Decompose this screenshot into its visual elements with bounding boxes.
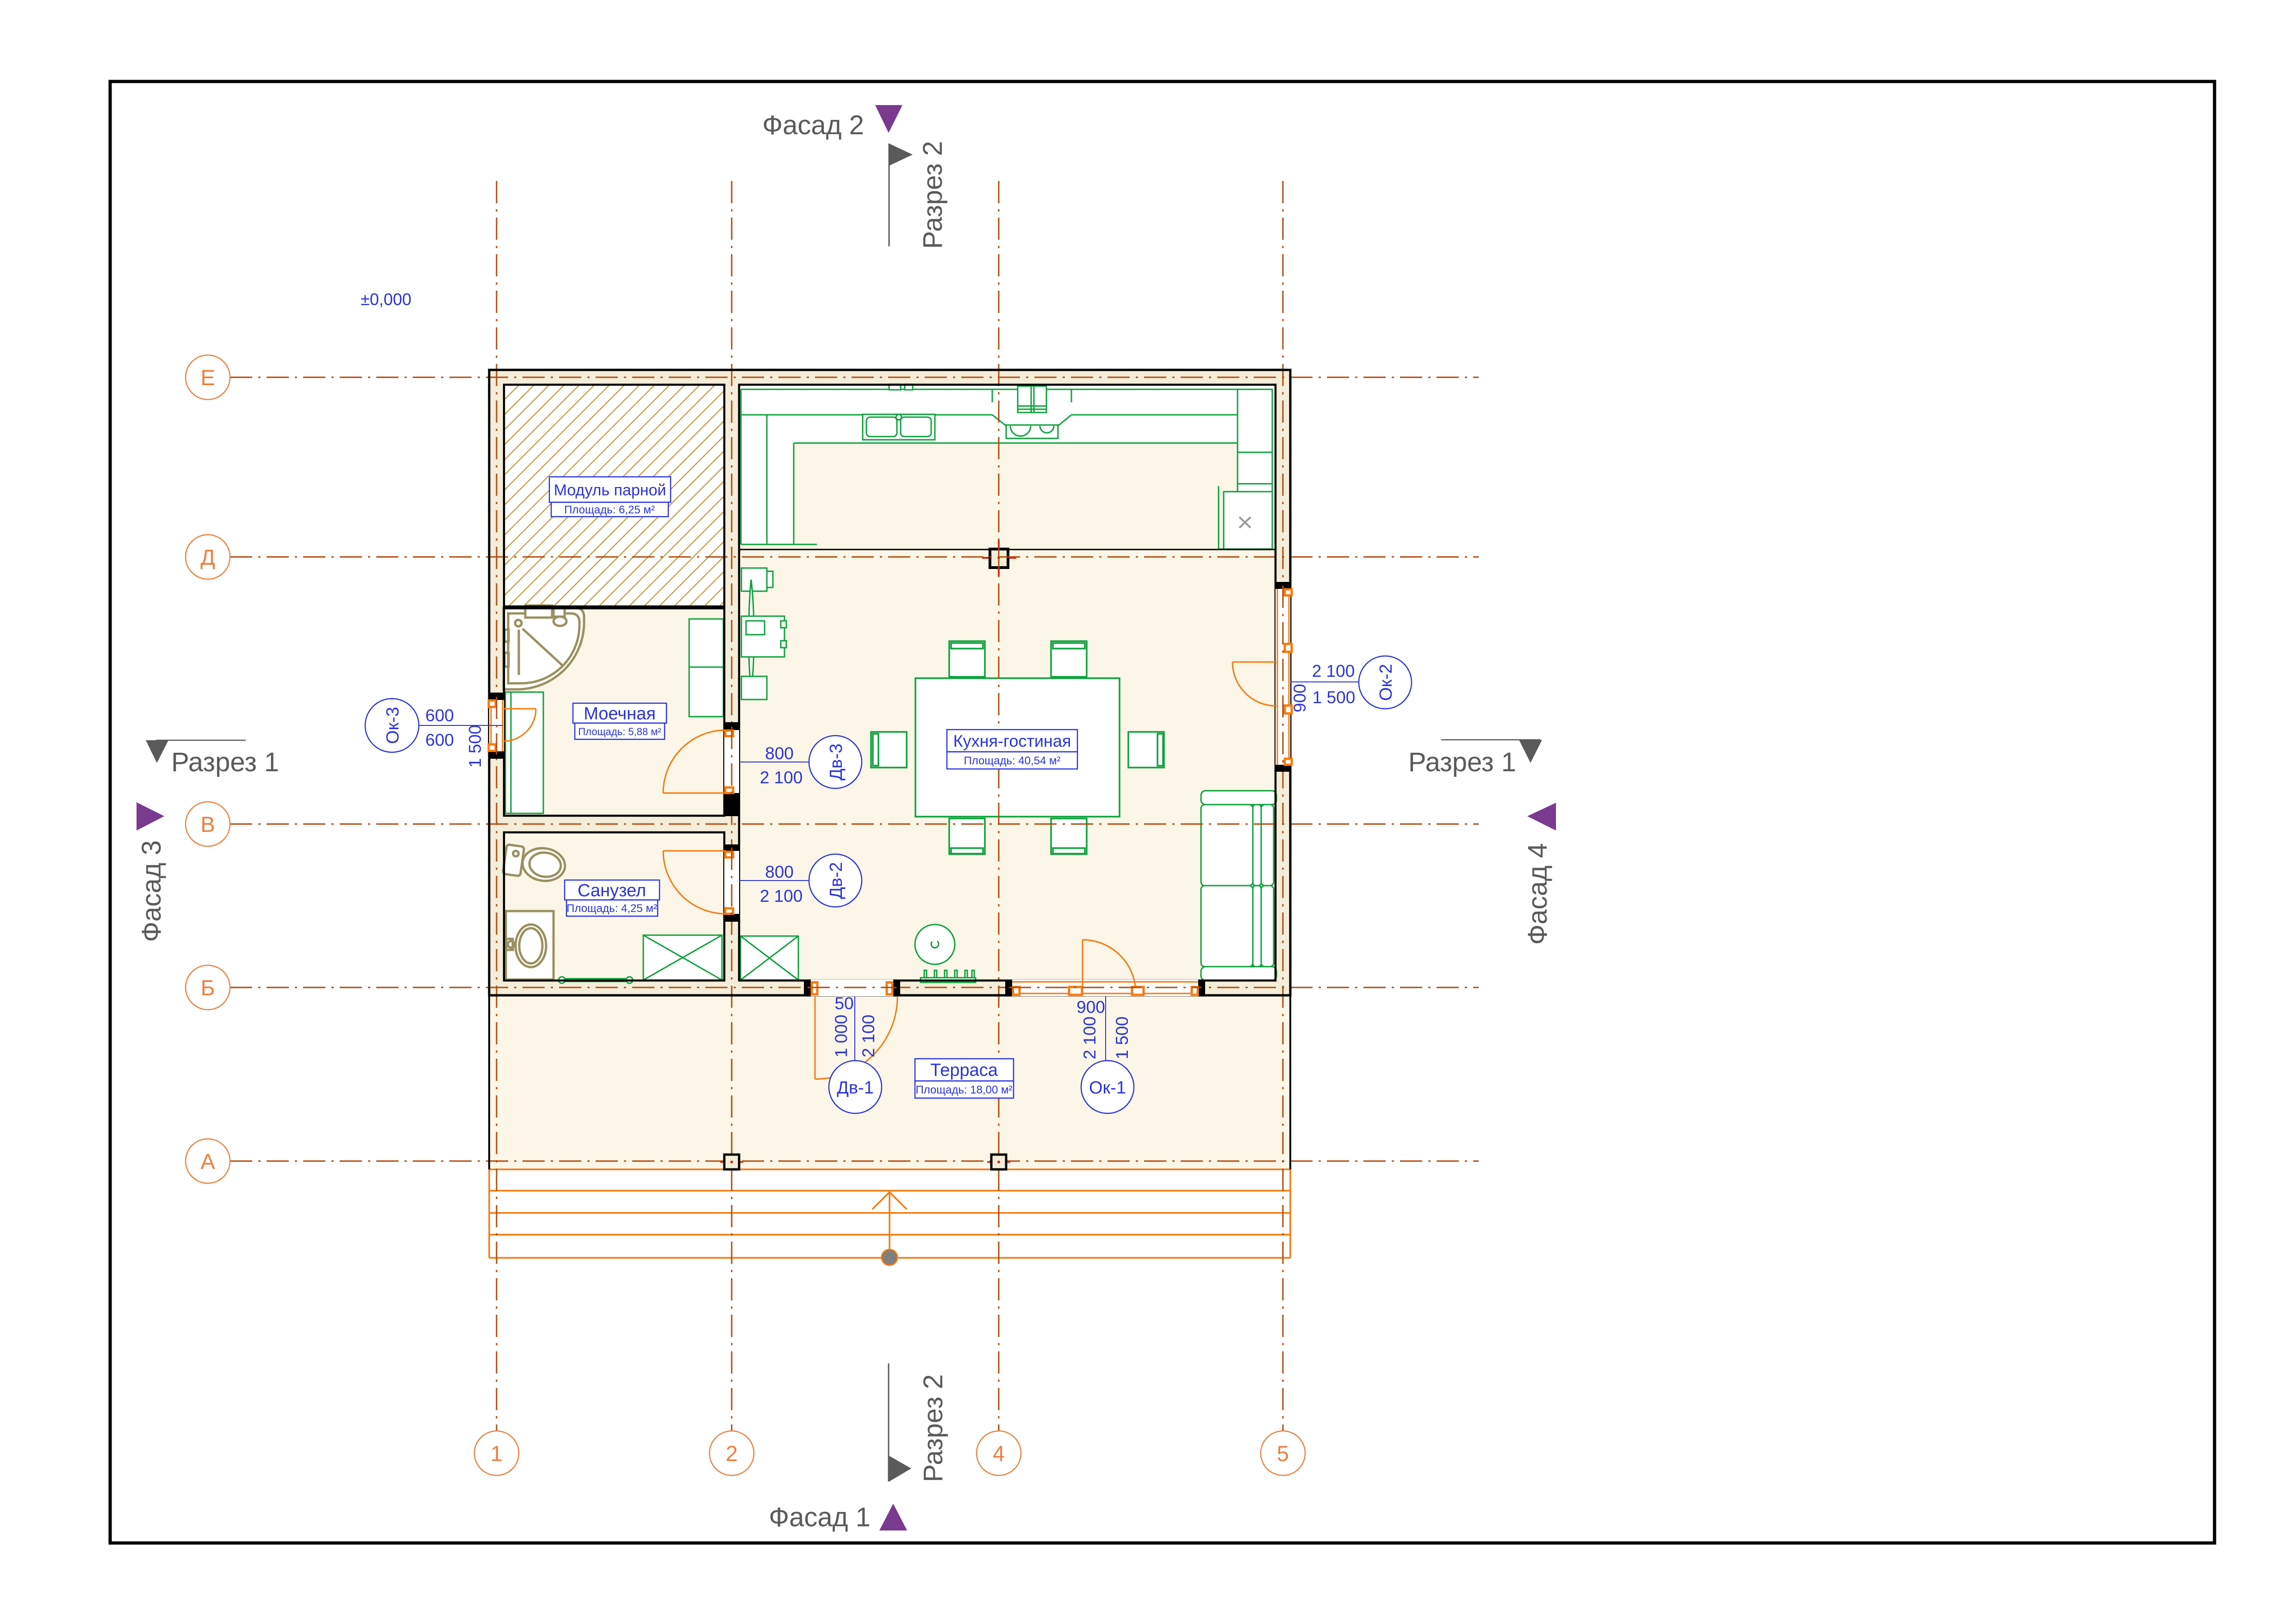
svg-text:Б: Б	[201, 975, 215, 1000]
svg-text:50: 50	[834, 994, 853, 1013]
svg-text:Площадь: 18,00 м²: Площадь: 18,00 м²	[915, 1084, 1012, 1096]
svg-text:800: 800	[765, 744, 794, 763]
svg-text:Ок-2: Ок-2	[1376, 664, 1396, 701]
svg-text:Дв-3: Дв-3	[827, 743, 846, 781]
svg-text:Ок-3: Ок-3	[383, 707, 403, 744]
svg-text:Фасад 1: Фасад 1	[769, 1502, 871, 1532]
svg-text:Площадь: 6,25 м²: Площадь: 6,25 м²	[564, 504, 655, 516]
svg-text:Терраса: Терраса	[930, 1061, 998, 1080]
svg-text:Ок-1: Ок-1	[1089, 1078, 1126, 1098]
svg-text:Санузел: Санузел	[578, 881, 646, 900]
svg-text:Дв-1: Дв-1	[837, 1078, 874, 1098]
svg-text:2 100: 2 100	[859, 1015, 878, 1058]
svg-text:Площадь: 40,54 м²: Площадь: 40,54 м²	[964, 755, 1060, 767]
svg-text:600: 600	[425, 706, 454, 725]
svg-text:2: 2	[726, 1441, 738, 1466]
svg-text:Фасад 3: Фасад 3	[137, 840, 167, 942]
svg-text:В: В	[200, 812, 215, 837]
svg-text:1 500: 1 500	[1113, 1017, 1132, 1060]
svg-text:900: 900	[1076, 998, 1105, 1017]
svg-text:Разрез 1: Разрез 1	[1408, 747, 1516, 777]
svg-text:Разрез 2: Разрез 2	[918, 141, 948, 249]
svg-text:1 500: 1 500	[466, 725, 485, 768]
svg-text:Е: Е	[200, 365, 215, 390]
svg-text:600: 600	[425, 731, 454, 750]
svg-text:1: 1	[491, 1441, 503, 1466]
svg-text:Разрез 1: Разрез 1	[171, 747, 279, 777]
svg-text:Модуль парной: Модуль парной	[554, 481, 666, 499]
svg-text:2 100: 2 100	[760, 887, 803, 906]
svg-text:Фасад 4: Фасад 4	[1523, 843, 1553, 945]
svg-text:900: 900	[1290, 684, 1309, 712]
svg-text:2 100: 2 100	[1080, 1017, 1099, 1060]
svg-text:±0,000: ±0,000	[361, 290, 411, 309]
svg-text:Кухня-гостиная: Кухня-гостиная	[953, 731, 1071, 750]
svg-text:А: А	[200, 1149, 215, 1174]
svg-text:1 000: 1 000	[832, 1015, 851, 1058]
svg-text:5: 5	[1277, 1441, 1289, 1466]
svg-text:2 100: 2 100	[760, 768, 803, 787]
svg-text:Дв-2: Дв-2	[827, 862, 846, 899]
svg-text:4: 4	[993, 1441, 1005, 1466]
svg-text:Моечная: Моечная	[584, 704, 656, 724]
svg-text:Площадь: 4,25 м²: Площадь: 4,25 м²	[566, 902, 657, 915]
svg-text:Площадь: 5,88 м²: Площадь: 5,88 м²	[578, 726, 661, 737]
svg-text:Фасад 2: Фасад 2	[762, 110, 864, 140]
svg-text:2 100: 2 100	[1312, 662, 1355, 681]
svg-text:Разрез 2: Разрез 2	[918, 1374, 948, 1482]
svg-text:800: 800	[765, 862, 794, 881]
svg-text:1 500: 1 500	[1313, 688, 1356, 707]
svg-text:Д: Д	[200, 545, 215, 569]
